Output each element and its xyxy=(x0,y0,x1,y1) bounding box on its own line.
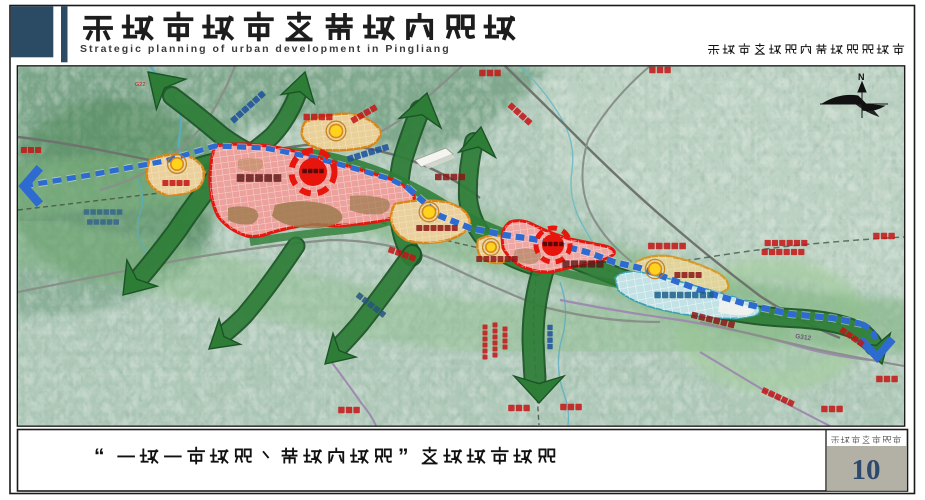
svg-text:N: N xyxy=(858,72,865,82)
svg-text:”: ” xyxy=(398,445,409,468)
svg-text:10: 10 xyxy=(852,454,881,486)
svg-text:“: “ xyxy=(94,445,105,468)
svg-text:Strategic planning of urban de: Strategic planning of urban development … xyxy=(80,43,451,55)
svg-text:G22: G22 xyxy=(135,82,145,88)
